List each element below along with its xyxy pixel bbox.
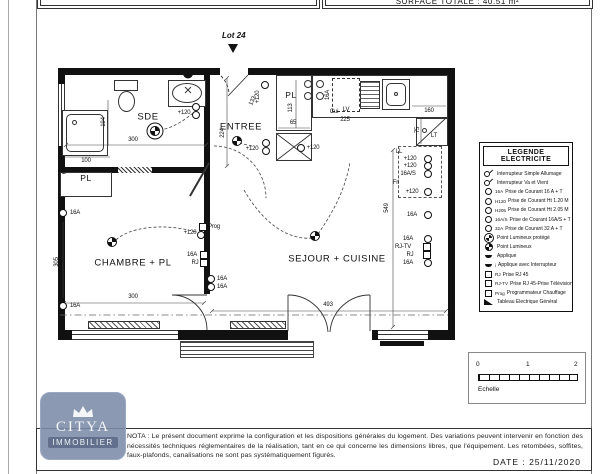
legend-row: H205 Prise de Courant Ht 2.05 M [483,206,569,215]
legend-row-label: Tableau Electrique Général [497,299,557,305]
plan-item [59,209,67,217]
plan-item [262,147,270,155]
plan-item [424,211,432,219]
legend-row-label: Prise de Courant 32 A + T [505,226,562,232]
plan-item: 549 [384,203,390,212]
plan-item: +120 [255,91,261,104]
legend-symbol-icon [483,299,494,305]
plan-item: 16A/S [400,171,415,177]
wall-bottom-4 [428,330,455,340]
legend-row: RJ-TV Prise RJ 45-Prise Télévision [483,279,569,288]
plan-item: 113 [288,104,294,113]
plan-item [183,74,193,79]
page-edge-line [8,0,9,474]
radiator-bedroom [88,321,160,329]
logo-subtitle: IMMOBILIER [48,437,117,448]
plan-item [297,144,305,152]
plan-item: PL [285,90,296,100]
plan-item [197,231,205,239]
plan-item: 225 [340,117,349,123]
plan-item: 65 [290,120,296,126]
scale-label: Echelle [478,386,499,393]
plan-item: 16A [403,236,413,242]
plan-item [192,111,200,119]
date-label: DATE : 25/11/2020 [493,457,581,467]
plan-item: RJ [192,260,199,266]
plan-item [207,283,215,291]
plan-item: PL [80,173,91,183]
legend-row-label: Prise de Courant Ht 2.05 M [508,207,569,213]
legend-row-label: Programmateur Chauffage [507,290,566,296]
surface-total-box: SURFACE TOTALE : 40.51 m² [322,0,593,9]
plan-item: 16A [70,303,80,309]
plan-item [424,259,432,267]
plan-item [207,275,215,283]
plan-item: 16A [403,260,413,266]
plan-item: SEJOUR + CUISINE [288,254,386,265]
legend-row: i Applique avec Interrupteur [483,261,569,270]
plan-item [200,251,208,259]
sink-drain [394,92,398,96]
legend-row-label: Point Lumineux [497,244,531,250]
legend-row: RJ Prise RJ 45 [483,270,569,279]
floor-plan-page: SURFACE TOTALE : 40.51 m² Lot 24 [0,0,600,474]
sliding-door-sde [118,167,152,173]
radiator-living [230,321,286,329]
plan-item: 493 [323,302,332,308]
wall-right [448,68,455,340]
sink-drainer [360,81,380,109]
plan-item: 305 [54,257,60,266]
legend-row: Interrupteur Simple Allumage [483,169,569,178]
legend-row: Point Lumineux [483,243,569,252]
plan-item: 224 [220,128,226,137]
french-door-post-right [372,330,376,340]
plan-item: 300 [128,294,137,300]
duct-dot [422,128,427,133]
plan-item [310,231,320,241]
legend-symbol-icon [483,264,494,268]
scale-tick-1: 1 [526,361,530,368]
legend-row-label: Prise de Courant 16A/S + T [510,217,571,223]
legend-symbol-tag: H205 [495,208,506,213]
plan-item: 194 [101,117,107,126]
wc-cistern [114,80,138,91]
plan-item: +120 [404,156,417,162]
plan-item: LL [396,149,402,155]
plan-item: 300 [128,137,137,143]
legend-row-label: Interrupteur Simple Allumage [497,171,561,177]
hob-burner [316,92,324,100]
crown-icon [71,405,95,418]
plan-item [150,126,160,136]
legend-row: H120 Prise de Courant Ht 1.20 M [483,197,569,206]
logo-name: CITYA [56,419,110,436]
title-box-left [37,0,320,9]
legend-row-label: Prise RJ 45-Prise Télévision [510,281,573,287]
legend-symbol-icon [483,216,494,223]
wall-bottom-2 [178,330,288,340]
legend-row-label: Point Lumineux protégé [497,235,550,241]
legend-row-label: Prise de Courant 16 A + T [505,189,562,195]
legend-row: Point Lumineux protégé [483,233,569,242]
plan-item [59,302,67,310]
scale-tick-0: 0 [476,361,480,368]
plan-item [261,81,269,89]
plan-item: LT [431,133,437,139]
legend-row: 16A/S Prise de Courant 16A/S + T [483,215,569,224]
plan-item [424,170,432,178]
legend-row-label: Prise RJ 45 [503,272,529,278]
legend-symbol-icon [483,188,494,195]
legend-row: 32A Prise de Courant 32 A + T [483,224,569,233]
plan-item: 16A [217,276,227,282]
wc-bowl [118,91,135,112]
plan-item: Prog [208,224,220,230]
plan-item [262,139,270,147]
legend-symbol-icon [483,243,494,251]
legend-row: Applique [483,252,569,261]
plan-item: LV [343,107,350,113]
legend-symbol-tag: 16A/S [495,217,508,222]
plan-item: +120 [307,145,320,151]
legend-symbol-icon [483,225,494,232]
plan-item: 160 [424,108,433,114]
legend-symbol-tag: RJ [495,272,501,277]
window-bedroom [72,330,178,340]
frame-left-line [36,0,37,474]
legend-rows: Interrupteur Simple Allumage Interrupteu… [480,168,572,308]
plan-item: CHAMBRE + PL [94,258,171,269]
wall-top-right [248,68,455,75]
plan-item: 16A [217,284,227,290]
plan-item: RJ-TV [395,244,411,250]
legend-symbol-icon [483,180,494,186]
citya-logo: CITYA IMMOBILIER [40,392,126,460]
shower-tray [66,114,104,152]
plan-item: +120 [404,163,417,169]
legend-symbol-icon [483,271,494,278]
plan-item: Fri [393,180,399,186]
hob-burner [304,92,312,100]
plan-item [424,188,432,196]
legend-row-label: Interrupteur Va et Vient [497,180,548,186]
legend-row: Tableau Electrique Général [483,298,569,307]
hob-burner [304,80,312,88]
plan-item [199,223,207,231]
legend-row: 16A Prise de Courant 16 A + T [483,187,569,196]
plan-item [107,237,117,247]
legend-row: Prog Programmateur Chauffage [483,288,569,297]
french-door-post-left [284,330,288,340]
window-living [378,330,428,340]
scale-tick-2: 2 [574,361,578,368]
wall-top-left [58,68,220,75]
legend-symbol-tag: i [495,263,496,268]
legend-row-label: Applique avec Interrupteur [498,262,557,268]
plan-item: 65 [62,168,68,174]
legend-title: LEGENDE ELECTRICITE [483,146,569,166]
plan-item: 75 [415,127,421,133]
plan-item [200,259,208,267]
plan-item: RJ [407,252,414,258]
plan-item: Cui [330,109,338,115]
legend-symbol-icon [483,207,494,214]
legend-symbol-icon [483,198,494,205]
lot-arrow-icon [228,44,238,53]
nota-line-1: NOTA : Le présent document exprime la co… [127,432,583,442]
legend-row-label: Applique [497,253,516,259]
legend-electricity: LEGENDE ELECTRICITE Interrupteur Simple … [479,142,573,312]
legend-symbol-tag: 16A [495,189,503,194]
plan-item: 16A [70,210,80,216]
plan-item: SDE [137,112,158,123]
surface-total-label: SURFACE TOTALE : 40.51 m² [323,0,592,6]
legend-symbol-tag: H120 [495,199,506,204]
nota-line-2: nécessités techniques réglementaires de … [127,442,583,452]
washbasin-bowl [172,83,202,103]
plan-item [232,136,242,146]
legend-symbol-icon [483,235,494,241]
legend-symbol-icon [483,290,494,297]
legend-symbol-tag: 32A [495,226,503,231]
plan-item: +120 [178,110,191,116]
french-door-gap [288,330,372,340]
hob-burner [316,80,324,88]
plan-item: 16A [325,90,331,100]
lot-label: Lot 24 [222,31,246,40]
plan-item: +120 [246,146,259,152]
plan-item [424,162,432,170]
wall-bottom-1 [58,330,72,340]
plan-item: 16A [407,212,417,218]
plan-item: ENTREE [220,122,262,133]
legend-symbol-tag: Prog [495,291,505,296]
scale-ruler [478,374,578,381]
plan-item: +120 [184,230,197,236]
plan-item: +120 [406,189,419,195]
legend-row-label: Prise de Courant Ht 1.20 M [508,198,569,204]
sill-bar [380,341,424,346]
legend-row: Interrupteur Va et Vient [483,178,569,187]
frame-right-line [591,0,592,474]
plan-item [192,103,200,111]
plan-item [423,243,431,251]
plan-item [423,251,431,259]
legend-symbol-icon [483,280,494,287]
legend-symbol-icon [483,171,494,177]
exterior-steps [180,341,314,358]
plan-item: 100 [81,158,90,164]
plan-item [424,235,432,243]
legend-symbol-icon [483,255,494,259]
legend-symbol-tag: RJ-TV [495,281,508,286]
shower-drain [72,120,77,125]
plan-item: 16A [187,252,197,258]
